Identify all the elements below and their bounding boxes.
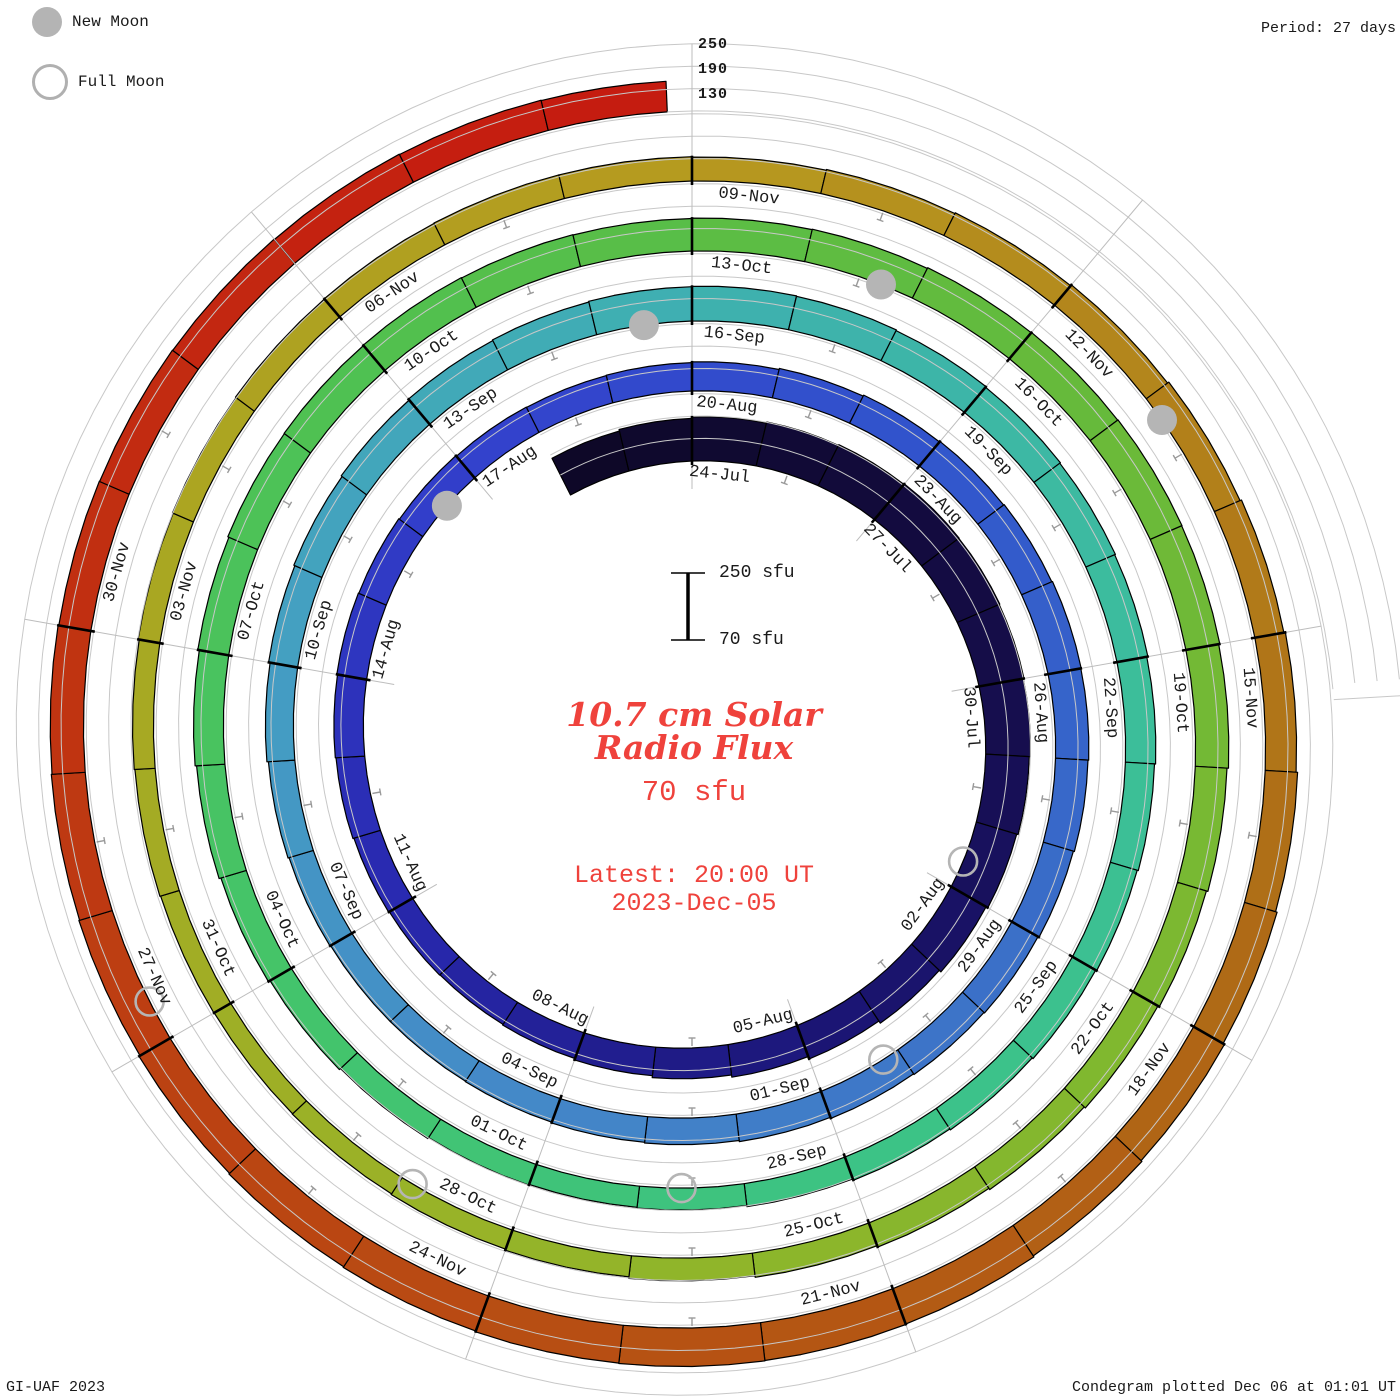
latest-time: Latest: 20:00 UT: [0, 862, 1388, 890]
chart-title-line2: Radio Flux: [0, 731, 1388, 764]
legend-full-moon: Full Moon: [32, 64, 164, 100]
flux-scale-bar-labels: 250 sfu70 sfu: [719, 563, 795, 650]
radial-scale-130: 130: [698, 86, 728, 103]
legend-full-moon-label: Full Moon: [78, 73, 164, 91]
baseline-value-label: 70 sfu: [0, 776, 1388, 809]
chart-title-line1: 10.7 cm Solar: [0, 698, 1388, 731]
date-label: 24-Jul: [688, 463, 751, 488]
new-moon-marker: [866, 270, 896, 300]
full-moon-icon: [32, 64, 68, 100]
svg-text:70 sfu: 70 sfu: [719, 630, 784, 650]
svg-text:250 sfu: 250 sfu: [719, 563, 795, 583]
chart-title: 10.7 cm Solar Radio Flux: [0, 698, 1388, 764]
latest-date: 2023-Dec-05: [0, 890, 1388, 918]
new-moon-marker: [432, 491, 462, 521]
new-moon-marker: [1147, 405, 1177, 435]
plotted-label: Condegram plotted Dec 06 at 01:01 UT: [1072, 1379, 1396, 1396]
period-label: Period: 27 days: [1261, 20, 1396, 37]
radial-scale-190: 190: [698, 61, 728, 78]
credit-label: GI-UAF 2023: [6, 1379, 105, 1396]
new-moon-icon: [32, 7, 62, 37]
new-moon-marker: [629, 310, 659, 340]
flux-scale-bar: [671, 573, 705, 640]
radial-scale-250: 250: [698, 36, 728, 53]
legend-new-moon: New Moon: [32, 7, 149, 37]
latest-observation: Latest: 20:00 UT 2023-Dec-05: [0, 862, 1388, 918]
legend-new-moon-label: New Moon: [72, 13, 149, 31]
condegram-page: 24-Jul27-Jul30-Jul02-Aug05-Aug08-Aug11-A…: [0, 0, 1400, 1400]
